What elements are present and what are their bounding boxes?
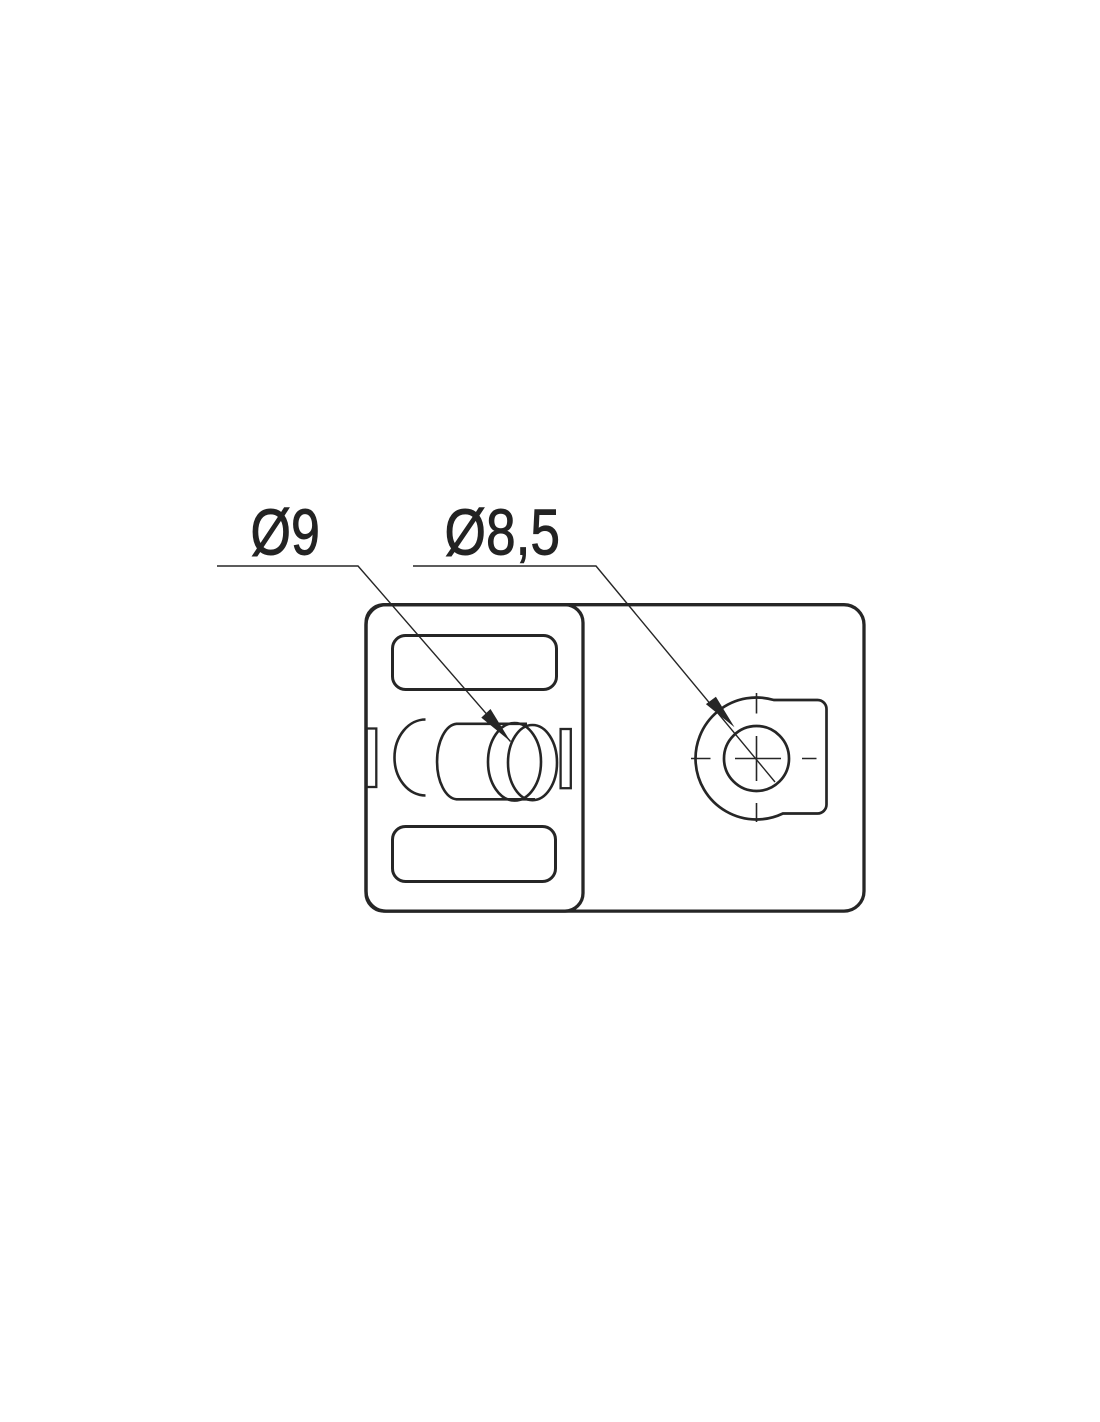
- svg-text:Ø8,5: Ø8,5: [445, 495, 561, 568]
- svg-text:Ø9: Ø9: [251, 497, 320, 569]
